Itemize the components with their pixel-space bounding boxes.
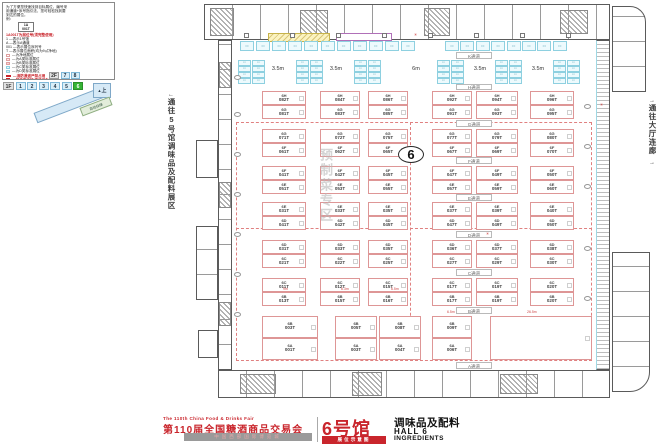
door-marker (474, 33, 479, 38)
booth: 6B003T (262, 316, 318, 338)
booth (437, 78, 450, 84)
column-pillar (584, 184, 591, 189)
booth (451, 60, 464, 66)
stairs-top-2 (300, 10, 328, 34)
booth (354, 66, 367, 72)
booth: 6D050T (530, 216, 574, 230)
booth (368, 78, 381, 84)
booth-label: 059T (477, 187, 517, 192)
booth: 6E059T (476, 180, 518, 194)
booth (353, 41, 367, 51)
door-marker (290, 33, 295, 38)
aisle-label: K通道 (456, 52, 492, 59)
booth: 6H094T (476, 91, 518, 105)
booth (321, 41, 335, 51)
booth: 6B016T (368, 292, 408, 306)
booth: 6C015T (368, 278, 408, 292)
booth-label: 072T (321, 136, 359, 141)
stairs-top-3 (424, 8, 450, 36)
booth: 6D037T (476, 240, 518, 254)
booth: 6E035T (368, 202, 408, 216)
booth: 6C027T (432, 254, 472, 268)
booth-label: 079T (477, 136, 517, 141)
title-badge: 展位示意图 (322, 436, 386, 444)
zone-watermark: 预制菜专区 (316, 148, 335, 223)
booth (256, 41, 270, 51)
booth: 6C022T (320, 254, 360, 268)
booth-label: 085T (369, 112, 407, 117)
booth (495, 78, 508, 84)
floor-label-1f: 1F (3, 82, 14, 90)
booth: 6D038T (530, 240, 574, 254)
door-marker (428, 33, 433, 38)
booth: 6G095T (530, 105, 574, 119)
booth-label: 037T (433, 209, 471, 214)
booth-label: 029T (477, 261, 517, 266)
booth (567, 72, 580, 78)
hall-cell-1f-4: 4 (50, 82, 60, 90)
booth (296, 72, 309, 78)
booth-label: 093T (477, 112, 517, 117)
booth-label: 001T (263, 348, 317, 353)
booth: 6F049T (476, 166, 518, 180)
booth: 6G075T (368, 129, 408, 143)
booth: 6F061T (262, 143, 306, 157)
booth-label: 084T (321, 98, 359, 103)
booth: 6H086T (368, 91, 408, 105)
booth-label: 037T (477, 247, 517, 252)
booth-label: 041T (263, 223, 305, 228)
booth-label: 038T (531, 247, 573, 252)
booth-label: 035T (369, 209, 407, 214)
booth-label: 051T (263, 187, 305, 192)
booth: 6H082T (262, 91, 306, 105)
aisle-label: H通道 (456, 84, 492, 90)
booth-label: 045T (369, 223, 407, 228)
booth: 6D047T (432, 216, 472, 230)
booth: 6G079T (476, 129, 518, 143)
dim-label: 26.5m (527, 310, 537, 314)
booth (437, 72, 450, 78)
column-pillar (234, 312, 241, 317)
booth-label: 019T (477, 285, 517, 290)
fire-mark-icon: ✳ (486, 232, 489, 236)
booth-label: 040T (531, 209, 573, 214)
booth (368, 72, 381, 78)
booth: 6A003T (335, 338, 377, 360)
stairs-left-2 (219, 182, 231, 208)
booth-label: 027T (433, 261, 471, 266)
booth: 6H096T (530, 91, 574, 105)
aisle-label: F通道 (456, 157, 492, 164)
booth-label: 049T (477, 173, 517, 178)
booth-label: 009T (433, 326, 471, 331)
hall-cell-1f-6: 6 (73, 82, 83, 90)
booth (509, 72, 522, 78)
booth-label: 039T (477, 209, 517, 214)
booth (296, 60, 309, 66)
stairs-top-4 (560, 10, 588, 34)
booth (252, 72, 265, 78)
booth (385, 41, 399, 51)
booth-label: 067T (433, 150, 471, 155)
stairs-bottom-1 (240, 374, 276, 394)
booth (272, 41, 286, 51)
column-pillar (234, 152, 241, 157)
hall-cell-1f-5: 5 (62, 82, 72, 90)
column-pillar (234, 75, 241, 80)
booth: 6G091T (432, 105, 472, 119)
booth (310, 72, 323, 78)
booth (553, 66, 566, 72)
floor-label-2f: 2F (49, 72, 59, 79)
booth: 6G093T (476, 105, 518, 119)
booth (368, 66, 381, 72)
booth-label: 019T (477, 299, 517, 304)
door-marker (520, 33, 525, 38)
booth (252, 60, 265, 66)
booth: 6B017T (432, 292, 472, 306)
stairs-bottom-3 (500, 374, 538, 394)
booth-label: 006T (433, 348, 471, 353)
booth (553, 78, 566, 84)
booth: 6B015T (320, 292, 360, 306)
aisle-label: C通道 (456, 269, 492, 276)
booth-label: 047T (433, 173, 471, 178)
booth (567, 78, 580, 84)
booth-label: 055T (369, 187, 407, 192)
booth-label: 083T (321, 112, 359, 117)
hall-map: 6 预制菜专区 3.5m3.5m6m3.5m3.5m6H082T6H084T6H… (0, 0, 666, 446)
booth-empty (490, 316, 592, 360)
booth (495, 60, 508, 66)
booth-label: 003T (336, 348, 376, 353)
hall-number: 6 (398, 146, 424, 163)
booth-label: 005T (336, 326, 376, 331)
rooms-right-bottom (612, 252, 650, 392)
booth (354, 60, 367, 66)
dim-label: 6.5m (391, 287, 399, 291)
booth: 6A004T (379, 338, 421, 360)
booth-label: 047T (433, 223, 471, 228)
booth-label: 050T (531, 223, 573, 228)
booth (451, 78, 464, 84)
booth (304, 41, 318, 51)
booth-label: 033T (321, 247, 359, 252)
aisle-label: G通道 (456, 120, 492, 127)
booth: 6A001T (262, 338, 318, 360)
booth-label: 017T (433, 299, 471, 304)
door-marker (566, 33, 571, 38)
booth-label: 049T (477, 223, 517, 228)
annex-left-1 (196, 140, 218, 178)
column-pillar (234, 192, 241, 197)
booth: 6F070T (530, 143, 574, 157)
dim-label: 6.3m (341, 287, 349, 291)
annex-left-3 (198, 330, 218, 358)
booth: 6H092T (432, 91, 472, 105)
booth: 6D041T (262, 216, 306, 230)
booth (491, 41, 505, 51)
booth: 6B008T (379, 316, 421, 338)
booth-label: 008T (380, 326, 420, 331)
booth: 6E040T (530, 202, 574, 216)
booth (509, 60, 522, 66)
door-marker (336, 33, 341, 38)
booth: 6G081T (262, 105, 306, 119)
door-marker (382, 33, 387, 38)
booth-label: 020T (531, 285, 573, 290)
booth: 6F047T (432, 166, 472, 180)
aisle-width-label: 6m (404, 66, 428, 74)
column-pillar (234, 232, 241, 237)
booth (451, 72, 464, 78)
booth-label: 025T (369, 261, 407, 266)
booth (252, 78, 265, 84)
booth-label: 015T (369, 285, 407, 290)
booth (553, 72, 566, 78)
title-category-en: INGREDIENTS (394, 435, 444, 442)
booth: 6G085T (368, 105, 408, 119)
booth: 6C025T (368, 254, 408, 268)
booth (495, 66, 508, 72)
column-pillar (584, 246, 591, 251)
booth (437, 60, 450, 66)
booth (288, 41, 302, 51)
booth: 6C029T (476, 254, 518, 268)
title-venue-bar: 中国西部国际博览城 (184, 433, 312, 441)
rooms-right-top (612, 6, 646, 92)
booth-label: 003T (263, 326, 317, 331)
annex-left-2 (196, 226, 218, 300)
booth-label: 004T (380, 348, 420, 353)
booth: 6C019T (476, 278, 518, 292)
booth (437, 66, 450, 72)
booth-label: 013T (263, 299, 305, 304)
booth: 6E039T (476, 202, 518, 216)
booth-label: 050T (531, 173, 573, 178)
aisle-width-label: 3.5m (526, 66, 550, 74)
booth (296, 66, 309, 72)
booth-label: 081T (263, 112, 305, 117)
booth: 6F067T (432, 143, 472, 157)
wall-top (204, 4, 610, 40)
booth: 6E031T (262, 202, 306, 216)
booth (354, 72, 367, 78)
booth (401, 41, 415, 51)
column-pillar (584, 104, 591, 109)
booth (553, 41, 567, 51)
booth: 6B013T (262, 292, 306, 306)
booth-label: 094T (477, 98, 517, 103)
booth-label: 080T (531, 136, 573, 141)
booth: 6C017T (432, 278, 472, 292)
booth-label: 017T (433, 285, 471, 290)
column-pillar (234, 112, 241, 117)
booth: 6C021T (262, 254, 306, 268)
booth: 6F041T (262, 166, 306, 180)
booth-label: 095T (531, 112, 573, 117)
booth (310, 78, 323, 84)
aisle-width-label: 3.5m (468, 66, 492, 74)
hall-cell-1f-2: 2 (27, 82, 37, 90)
booth-label: 042T (321, 223, 359, 228)
floorplan-page: 为了方便您快速找到目标展位，编号采用通道+序号指引法，您可轻松找到要到达的展位。… (0, 0, 666, 446)
booth: 6D033T (320, 240, 360, 254)
booth: 6E057T (432, 180, 472, 194)
hall-cell-1f-1: 1 (16, 82, 26, 90)
booth (310, 66, 323, 72)
booth: 6G080T (530, 129, 574, 143)
booth: 6F069T (476, 143, 518, 157)
booth: 6F045T (368, 166, 408, 180)
stairs-left-3 (219, 302, 231, 326)
booth: 6G072T (320, 129, 360, 143)
booth: 6C030T (530, 254, 574, 268)
stairs-top-1 (210, 8, 234, 36)
booth (310, 60, 323, 66)
stairs-left-1 (219, 62, 231, 88)
booth: 6G077T (432, 129, 472, 143)
booth-label: 082T (263, 98, 305, 103)
fire-mark-icon: ✳ (414, 33, 417, 37)
booth-label: 031T (263, 247, 305, 252)
booth (369, 41, 383, 51)
booth: 6C020T (530, 278, 574, 292)
booth: 6G071T (262, 129, 306, 143)
door-marker (244, 33, 249, 38)
dim-label: 9m (283, 287, 288, 291)
booth (354, 78, 367, 84)
booth-label: 075T (369, 136, 407, 141)
booth (445, 41, 459, 51)
aisle-label: E通道 (456, 194, 492, 201)
booth: 6B009T (432, 316, 472, 338)
column-pillar (584, 144, 591, 149)
booth-label: 092T (433, 98, 471, 103)
booth (507, 41, 521, 51)
hall-cell-2f-8: 8 (71, 72, 80, 79)
booth (567, 66, 580, 72)
title-divider (317, 417, 318, 442)
booth: 6C012T (320, 278, 360, 292)
booth: 6E060T (530, 180, 574, 194)
booth: 6A006T (432, 338, 472, 360)
booth (522, 41, 536, 51)
booth-label: 036T (433, 247, 471, 252)
booth: 6D031T (262, 240, 306, 254)
stairs-bottom-2 (352, 372, 382, 396)
booth (252, 66, 265, 72)
booth: 6D045T (368, 216, 408, 230)
booth-label: 069T (477, 150, 517, 155)
booth-label: 071T (263, 136, 305, 141)
booth: 6D049T (476, 216, 518, 230)
booth (451, 66, 464, 72)
hall-cell-2f-7: 7 (61, 72, 70, 79)
booth (460, 41, 474, 51)
booth (240, 41, 254, 51)
booth-label: 091T (433, 112, 471, 117)
aisle-label: A通道 (456, 362, 492, 369)
aisle-width-label: 3.5m (266, 66, 290, 74)
booth-label: 045T (369, 173, 407, 178)
booth (567, 60, 580, 66)
fire-mark-icon: ✳ (600, 103, 603, 107)
booth-label: 061T (263, 150, 305, 155)
dim-label: 6.5m (447, 310, 455, 314)
booth-label: 031T (263, 209, 305, 214)
booth (238, 66, 251, 72)
booth (296, 78, 309, 84)
booth-label: 041T (263, 173, 305, 178)
column-pillar (234, 272, 241, 277)
booth: 6F050T (530, 166, 574, 180)
booth: 6D036T (432, 240, 472, 254)
booth (337, 41, 351, 51)
booth-label: 077T (433, 136, 471, 141)
aisle-width-label: 3.5m (324, 66, 348, 74)
booth-label: 012T (321, 285, 359, 290)
booth: 6B019T (476, 292, 518, 306)
booth: 6E055T (368, 180, 408, 194)
booth: 6D035T (368, 240, 408, 254)
booth: 6B005T (335, 316, 377, 338)
booth: 6E037T (432, 202, 472, 216)
booth (509, 66, 522, 72)
booth (553, 60, 566, 66)
booth-label: 060T (531, 187, 573, 192)
booth-label: 070T (531, 150, 573, 155)
booth-label: 096T (531, 98, 573, 103)
wall-bottom (218, 370, 610, 398)
booth-label: 016T (369, 299, 407, 304)
booth-label: 030T (531, 261, 573, 266)
booth-label: 020T (531, 299, 573, 304)
booth (509, 78, 522, 84)
booth (537, 41, 551, 51)
booth (368, 60, 381, 66)
column-pillar (584, 296, 591, 301)
booth (238, 60, 251, 66)
booth: 6H084T (320, 91, 360, 105)
booth (476, 41, 490, 51)
booth (495, 72, 508, 78)
corridor-right-strip (596, 40, 610, 370)
booth: 6G083T (320, 105, 360, 119)
booth: 6B020T (530, 292, 574, 306)
booth-label: 022T (321, 261, 359, 266)
booth-label: 086T (369, 98, 407, 103)
booth-label: 021T (263, 261, 305, 266)
booth-label: 057T (433, 187, 471, 192)
booth-label: 015T (321, 299, 359, 304)
booth-label: 035T (369, 247, 407, 252)
hall-cell-1f-3: 3 (39, 82, 49, 90)
booth: 6E051T (262, 180, 306, 194)
aisle-label: B通道 (456, 307, 492, 314)
